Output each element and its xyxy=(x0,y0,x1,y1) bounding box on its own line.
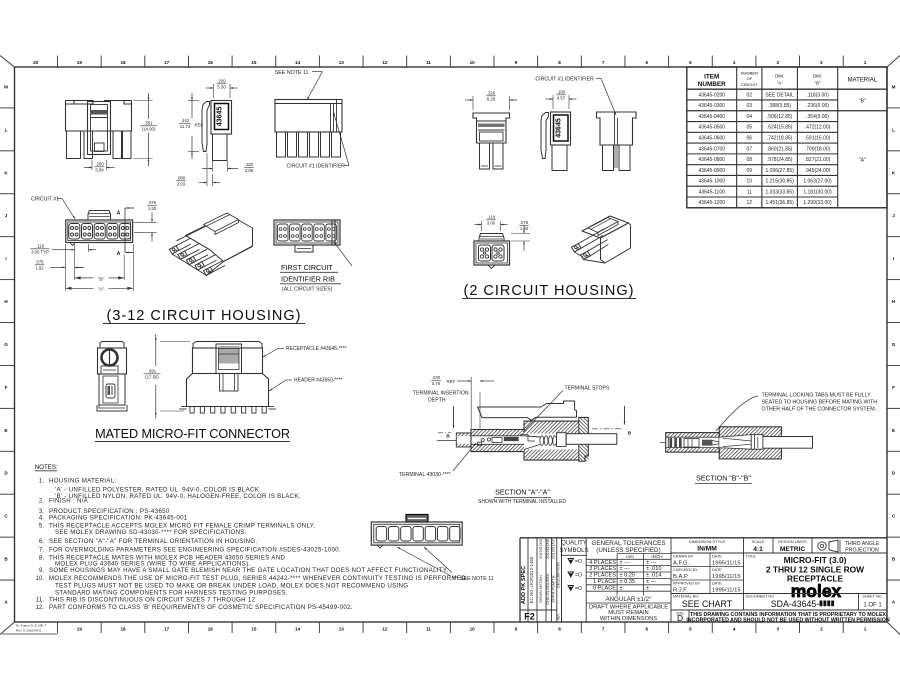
svg-text:4:1: 4:1 xyxy=(753,546,763,553)
svg-text:43645-1000: 43645-1000 xyxy=(698,179,725,185)
svg-text:15: 15 xyxy=(251,627,257,632)
svg-text:(ALL CIRCUIT SIZES): (ALL CIRCUIT SIZES) xyxy=(282,287,333,293)
svg-text:5.: 5. xyxy=(39,522,44,529)
svg-text:0.76: 0.76 xyxy=(432,381,441,386)
svg-text:9.: 9. xyxy=(39,567,44,574)
svg-text:DRAWN BY: DRAWN BY xyxy=(673,555,694,559)
svg-text:B: B xyxy=(446,434,450,440)
svg-text:12.: 12. xyxy=(35,604,44,611)
svg-text:1.93: 1.93 xyxy=(148,206,157,211)
svg-text:8.28: 8.28 xyxy=(487,96,496,101)
svg-text:2012/07/07: 2012/07/07 xyxy=(551,538,556,559)
svg-text:12: 12 xyxy=(382,627,388,632)
svg-text:.691: .691 xyxy=(148,369,157,374)
svg-text:MOLEX RECOMMENDS THE USE OF MI: MOLEX RECOMMENDS THE USE OF MICRO-FIT TE… xyxy=(49,575,468,582)
svg-text:HOUSING MATERIAL:: HOUSING MATERIAL: xyxy=(49,478,116,485)
svg-text:1.181(30.00): 1.181(30.00) xyxy=(803,189,832,195)
svg-text:1 PLACE: 1 PLACE xyxy=(593,579,616,585)
svg-text:SHEET NO.: SHEET NO. xyxy=(862,595,882,599)
svg-text:CIRCUIT #1 IDENTIFIER: CIRCUIT #1 IDENTIFIER xyxy=(287,164,346,170)
svg-text:=O: =O xyxy=(575,586,582,592)
svg-text:19: 19 xyxy=(77,60,83,65)
svg-text:2: 2 xyxy=(820,60,823,65)
svg-text:.506(12.85): .506(12.85) xyxy=(767,114,793,120)
svg-text:09: 09 xyxy=(747,168,753,174)
svg-text:FIRST CIRCUIT: FIRST CIRCUIT xyxy=(281,263,333,272)
svg-text:TITLE: TITLE xyxy=(746,555,757,559)
svg-text:INCH: INCH xyxy=(651,554,662,559)
svg-text:11: 11 xyxy=(426,60,431,65)
svg-text:SECTION "A"-"A": SECTION "A"-"A" xyxy=(495,490,550,497)
svg-text:10: 10 xyxy=(747,179,753,185)
svg-text:SEE SECTION "A"-"A" FOR TERMI: SEE SECTION "A"-"A" FOR TERMINAL ORIENTA… xyxy=(49,538,258,545)
svg-text:.075: .075 xyxy=(35,260,44,265)
svg-text:4.: 4. xyxy=(39,515,44,522)
svg-text:43645-0200: 43645-0200 xyxy=(698,92,725,98)
svg-text:4: 4 xyxy=(733,627,736,632)
svg-text:.472(12.00): .472(12.00) xyxy=(805,125,831,131)
svg-text:M: M xyxy=(4,84,8,89)
svg-text:DOCUMENT NO.: DOCUMENT NO. xyxy=(746,595,776,599)
svg-text:4: 4 xyxy=(733,60,736,65)
svg-text:.742(18.85): .742(18.85) xyxy=(767,136,793,142)
svg-text:"A": "A" xyxy=(777,81,783,86)
svg-text:2.: 2. xyxy=(39,498,44,505)
svg-text:± ---: ± --- xyxy=(646,560,656,566)
svg-text:5: 5 xyxy=(689,627,692,632)
svg-text:ITEM: ITEM xyxy=(704,74,719,81)
svg-text:1.451(36.85): 1.451(36.85) xyxy=(765,200,794,206)
svg-text:CIRCUIT: CIRCUIT xyxy=(741,82,758,87)
svg-text:± 0.25: ± 0.25 xyxy=(620,573,636,579)
svg-text:04: 04 xyxy=(747,114,753,120)
svg-text:MATERIAL NO.: MATERIAL NO. xyxy=(673,595,699,599)
svg-text:43645-0600: 43645-0600 xyxy=(698,136,725,142)
svg-text:HEADER #43650-****: HEADER #43650-**** xyxy=(294,378,342,384)
svg-text:08: 08 xyxy=(747,157,753,163)
svg-text:05: 05 xyxy=(747,125,753,131)
svg-text:F2: F2 xyxy=(524,612,535,622)
svg-text:9: 9 xyxy=(515,60,518,65)
svg-text:3: 3 xyxy=(776,627,779,632)
svg-text:17: 17 xyxy=(164,627,170,632)
svg-text:1.096(27.85): 1.096(27.85) xyxy=(765,168,794,174)
svg-text:APPR:PSMITH: APPR:PSMITH xyxy=(551,575,556,602)
svg-text:PROJECTION: PROJECTION xyxy=(845,548,879,554)
svg-text:11.74: 11.74 xyxy=(180,124,191,129)
svg-text:5.30: 5.30 xyxy=(217,84,226,89)
svg-text:(2 CIRCUIT HOUSING): (2 CIRCUIT HOUSING) xyxy=(464,283,635,299)
svg-text:.624(15.85): .624(15.85) xyxy=(767,125,793,131)
svg-text:D: D xyxy=(677,613,683,623)
svg-text:G: G xyxy=(892,342,896,347)
svg-text:TERMINAL INSERTION: TERMINAL INSERTION xyxy=(413,391,469,397)
svg-text:2 PLACES: 2 PLACES xyxy=(589,573,616,579)
svg-text:GENERAL TOLERANCES: GENERAL TOLERANCES xyxy=(591,540,665,547)
svg-text:"A": "A" xyxy=(859,158,866,164)
svg-text:PART CONFORMS TO CLASS 'B' REQ: PART CONFORMS TO CLASS 'B' REQUIREMENTS … xyxy=(49,604,353,611)
svg-text:.709(18.00): .709(18.00) xyxy=(805,146,831,152)
svg-text:(3-12 CIRCUIT HOUSING): (3-12 CIRCUIT HOUSING) xyxy=(107,308,302,324)
svg-text:5.09: 5.09 xyxy=(95,167,104,172)
svg-text:3.00 TYP: 3.00 TYP xyxy=(31,249,49,254)
svg-text:± .010: ± .010 xyxy=(646,566,662,572)
svg-text:.080: .080 xyxy=(177,176,186,181)
svg-text:10.: 10. xyxy=(35,575,44,582)
svg-text:.326: .326 xyxy=(487,91,496,96)
svg-text:8: 8 xyxy=(558,60,561,65)
svg-text:DIM.: DIM. xyxy=(813,74,822,79)
svg-text:'B' - UNFILLED NYLON, RATED UL: 'B' - UNFILLED NYLON, RATED UL. 94V-0, H… xyxy=(55,493,301,500)
svg-text:MATERIAL: MATERIAL xyxy=(848,78,878,84)
svg-text:INCORPORATED AND SHOULD NOT BE: INCORPORATED AND SHOULD NOT BE USED WITH… xyxy=(686,618,890,624)
svg-text:(14.00): (14.00) xyxy=(142,126,156,131)
svg-text:10: 10 xyxy=(470,60,476,65)
svg-text:G: G xyxy=(4,342,8,347)
svg-text:9: 9 xyxy=(515,627,518,632)
svg-text:FINISH : N/A: FINISH : N/A xyxy=(49,498,89,505)
svg-text:A.F.G.: A.F.G. xyxy=(673,561,689,567)
svg-text:± .014: ± .014 xyxy=(646,573,662,579)
svg-text:Dr. Frame D_P_ME_T: Dr. Frame D_P_ME_T xyxy=(16,624,47,628)
svg-text:02: 02 xyxy=(747,92,753,98)
svg-text:M: M xyxy=(892,84,896,89)
svg-text:EC NO. UCP2012-1450: EC NO. UCP2012-1450 xyxy=(529,556,534,603)
svg-text:RECEPTACLE #43645-****: RECEPTACLE #43645-**** xyxy=(286,346,347,352)
svg-text:.118: .118 xyxy=(487,215,496,220)
svg-text:.180: .180 xyxy=(557,90,566,95)
svg-text:IN/MM: IN/MM xyxy=(697,546,717,553)
svg-text:4.57: 4.57 xyxy=(557,95,566,100)
svg-text:L: L xyxy=(892,127,895,132)
svg-text:.388(9.85): .388(9.85) xyxy=(768,103,791,109)
svg-text:4 PLACES: 4 PLACES xyxy=(589,560,616,566)
svg-text:20: 20 xyxy=(33,60,39,65)
svg-text:1.92: 1.92 xyxy=(35,265,44,270)
svg-text:7.: 7. xyxy=(39,546,44,553)
svg-text:SCALE: SCALE xyxy=(751,539,764,544)
svg-text:1.063(27.00): 1.063(27.00) xyxy=(803,179,832,185)
svg-text:APPROVED BY: APPROVED BY xyxy=(673,582,701,586)
svg-text:DRWN:MSTBH: DRWN:MSTBH xyxy=(538,575,543,603)
svg-text:OF: OF xyxy=(747,76,753,81)
svg-text:10: 10 xyxy=(470,627,476,632)
svg-text:"A": "A" xyxy=(98,287,105,293)
svg-text:± ---: ± --- xyxy=(620,566,630,572)
svg-text:SEE CHART: SEE CHART xyxy=(682,599,733,609)
svg-text:5: 5 xyxy=(689,60,692,65)
svg-text:B: B xyxy=(628,431,632,437)
svg-text:A: A xyxy=(117,211,121,217)
svg-text:E: E xyxy=(892,428,895,433)
svg-text:.978(24.85): .978(24.85) xyxy=(767,157,793,163)
svg-text:SEE MOLEX DRAWING SD-43030-***: SEE MOLEX DRAWING SD-43030-**** FOR SPEC… xyxy=(55,529,247,536)
svg-text:0 PLACE: 0 PLACE xyxy=(593,585,616,591)
svg-text:1.: 1. xyxy=(39,478,44,485)
svg-text:TERMINAL STOPS: TERMINAL STOPS xyxy=(565,386,611,392)
svg-text:mm: mm xyxy=(626,554,634,559)
svg-text:THIS RIB IS DISCONTINUOUS ON C: THIS RIB IS DISCONTINUOUS ON CIRCUIT SIZ… xyxy=(49,597,256,604)
svg-text:DIMENSION STYLE: DIMENSION STYLE xyxy=(689,539,726,544)
svg-text:06: 06 xyxy=(747,136,753,142)
svg-text:TERMINAL LOCKING TABS MUST BE: TERMINAL LOCKING TABS MUST BE FULLY xyxy=(762,393,872,399)
svg-text:07: 07 xyxy=(747,146,753,152)
svg-text:8: 8 xyxy=(558,627,561,632)
svg-text:A: A xyxy=(117,251,121,257)
svg-text:.354(9.00): .354(9.00) xyxy=(806,114,829,120)
svg-text:SDA-43645-: SDA-43645- xyxy=(771,599,819,609)
svg-text:.030: .030 xyxy=(432,375,441,380)
svg-text:STANDARD MATING COMPONENTS FOR: STANDARD MATING COMPONENTS FOR HARNESS T… xyxy=(55,589,288,596)
svg-text:molex: molex xyxy=(791,581,842,601)
svg-text:.118(3.00): .118(3.00) xyxy=(806,92,829,98)
svg-text:Rev. G 2010/04/11: Rev. G 2010/04/11 xyxy=(16,629,42,633)
svg-text:CIRCUIT #1: CIRCUIT #1 xyxy=(31,197,59,203)
svg-text:1: 1 xyxy=(864,60,867,65)
svg-text:THIRD ANGLE: THIRD ANGLE xyxy=(845,541,880,547)
svg-text:1995/11/15: 1995/11/15 xyxy=(712,561,741,567)
svg-text:REV: REV xyxy=(557,613,561,620)
svg-text:±: ± xyxy=(646,585,649,591)
svg-text:F: F xyxy=(892,385,895,390)
svg-text:13: 13 xyxy=(339,60,345,65)
svg-text:DATE: DATE xyxy=(712,555,722,559)
svg-text:"B": "B" xyxy=(815,81,821,86)
svg-text:.236(6.00): .236(6.00) xyxy=(806,103,829,109)
svg-text:2: 2 xyxy=(820,627,823,632)
svg-text:DIM.: DIM. xyxy=(775,74,784,79)
svg-text:1995/11/15: 1995/11/15 xyxy=(712,588,741,594)
svg-text:NUMBER: NUMBER xyxy=(698,81,726,88)
svg-text:.591(15.00): .591(15.00) xyxy=(805,136,831,142)
svg-text:PACKAGING SPECIFICATION: PK-43: PACKAGING SPECIFICATION: PK-43645-001 xyxy=(49,515,188,522)
svg-text:03: 03 xyxy=(747,103,753,109)
svg-text:11.: 11. xyxy=(36,597,44,604)
svg-text:3.86: 3.86 xyxy=(245,168,254,173)
svg-text:43645: 43645 xyxy=(556,118,563,138)
svg-text:.076: .076 xyxy=(520,220,529,225)
svg-text:SHOWN WITH TERMINAL INSTALLED: SHOWN WITH TERMINAL INSTALLED xyxy=(478,499,566,505)
svg-text:FOR OVERMOLDING PARAMETERS SEE: FOR OVERMOLDING PARAMETERS SEE ENGINEERI… xyxy=(49,546,341,553)
svg-text:ADD PK SPEC: ADD PK SPEC xyxy=(521,566,527,604)
svg-text:I: I xyxy=(893,256,894,261)
svg-text:DESIGN UNITS: DESIGN UNITS xyxy=(778,539,807,544)
svg-text:NUMBER: NUMBER xyxy=(741,71,758,76)
svg-text:2012/07/03: 2012/07/03 xyxy=(538,538,543,559)
svg-text:SYMBOLS: SYMBOLS xyxy=(559,548,588,554)
svg-text:3: 3 xyxy=(776,60,779,65)
svg-text:DEPTH: DEPTH xyxy=(428,398,446,404)
svg-text:18: 18 xyxy=(120,60,126,65)
svg-text:SEATED TO HOUSING BEFORE MATIN: SEATED TO HOUSING BEFORE MATING WITH xyxy=(762,400,878,406)
svg-text:2.03: 2.03 xyxy=(177,181,186,186)
svg-text:6.: 6. xyxy=(39,538,44,545)
svg-text:OTHER HALF OF THE CONNECTOR SY: OTHER HALF OF THE CONNECTOR SYSTEM. xyxy=(762,407,877,413)
svg-text:=O: =O xyxy=(575,559,582,565)
svg-text:15: 15 xyxy=(251,60,257,65)
svg-text:43645: 43645 xyxy=(217,107,224,127)
svg-text:=O: =O xyxy=(575,573,582,579)
svg-text:43645-0900: 43645-0900 xyxy=(698,168,725,174)
svg-text:(UNLESS SPECIFIED): (UNLESS SPECIFIED) xyxy=(596,547,660,554)
svg-text:SEE DETAIL: SEE DETAIL xyxy=(765,92,794,98)
svg-text:43645-0400: 43645-0400 xyxy=(698,114,725,120)
svg-text:6: 6 xyxy=(646,627,649,632)
svg-text:13: 13 xyxy=(339,627,345,632)
svg-text:WITHIN DIMENSONS: WITHIN DIMENSONS xyxy=(600,616,657,622)
svg-text:12: 12 xyxy=(382,60,388,65)
svg-text:TERMINAL 43030-****: TERMINAL 43030-**** xyxy=(399,472,451,478)
svg-text:.118: .118 xyxy=(36,244,45,249)
svg-text:8.: 8. xyxy=(39,555,44,562)
svg-text:METRIC: METRIC xyxy=(780,546,806,553)
svg-text:QUALITY: QUALITY xyxy=(561,541,587,547)
svg-text:"B": "B" xyxy=(98,276,105,282)
svg-text:43645-0300: 43645-0300 xyxy=(698,103,725,109)
svg-text:(17.56): (17.56) xyxy=(145,374,159,379)
svg-text:43645-1200: 43645-1200 xyxy=(698,200,725,206)
svg-text:DATE: DATE xyxy=(712,568,722,572)
svg-text:± ---: ± --- xyxy=(646,579,656,585)
svg-text:MATED MICRO-FIT CONNECTOR: MATED MICRO-FIT CONNECTOR xyxy=(95,427,290,441)
svg-text:.551: .551 xyxy=(144,121,153,126)
svg-text:CIRCUIT #1 IDENTIFIER: CIRCUIT #1 IDENTIFIER xyxy=(535,77,594,83)
svg-text:1 OF 1: 1 OF 1 xyxy=(863,603,882,609)
svg-text:14: 14 xyxy=(295,627,301,632)
svg-text:"B": "B" xyxy=(859,99,866,105)
svg-text:.209: .209 xyxy=(217,79,226,84)
svg-text:43645-0500: 43645-0500 xyxy=(698,125,725,131)
svg-text:1.215(30.85): 1.215(30.85) xyxy=(765,179,794,185)
svg-text:B.A.P.: B.A.P. xyxy=(673,574,689,580)
svg-text:L: L xyxy=(5,127,8,132)
svg-text:MICRO-FIT (3.0): MICRO-FIT (3.0) xyxy=(784,555,847,565)
svg-text:.945(24.00): .945(24.00) xyxy=(805,168,831,174)
svg-text:11: 11 xyxy=(747,189,752,195)
svg-text:43645-1100: 43645-1100 xyxy=(699,189,726,195)
svg-text:F: F xyxy=(5,385,8,390)
svg-text:R.J.F.: R.J.F. xyxy=(673,588,688,594)
svg-text:DESCRIPTION: DESCRIPTION xyxy=(557,562,561,588)
svg-text:ANGULAR ±1/2°: ANGULAR ±1/2° xyxy=(605,596,652,603)
svg-text:12: 12 xyxy=(747,200,753,206)
svg-text:1995/11/15: 1995/11/15 xyxy=(712,574,741,580)
svg-text:.200: .200 xyxy=(95,162,104,167)
svg-text:1.299(33.00): 1.299(33.00) xyxy=(803,200,832,206)
svg-text:6: 6 xyxy=(646,60,649,65)
svg-text:43645-0800: 43645-0800 xyxy=(698,157,725,163)
svg-text:SOME HOUSINGS MAY HAVE A SMALL: SOME HOUSINGS MAY HAVE A SMALL GATE BLEM… xyxy=(49,567,448,574)
svg-text:17: 17 xyxy=(164,60,170,65)
svg-text:.827(21.00): .827(21.00) xyxy=(805,157,831,163)
svg-text:I: I xyxy=(5,256,6,261)
svg-text:CHK:GLSOUSEK: CHK:GLSOUSEK xyxy=(545,573,550,605)
svg-text:±: ± xyxy=(620,585,623,591)
svg-text:SEE NOTE 11: SEE NOTE 11 xyxy=(275,70,309,76)
svg-text:.442: .442 xyxy=(181,118,190,123)
svg-text:J: J xyxy=(5,213,8,218)
svg-text:REF: REF xyxy=(195,123,204,128)
svg-text:DATE: DATE xyxy=(712,582,722,586)
svg-text:11: 11 xyxy=(426,627,431,632)
svg-text:± 0.35: ± 0.35 xyxy=(620,579,636,585)
svg-text:.152: .152 xyxy=(245,162,254,167)
svg-text:J: J xyxy=(892,213,895,218)
svg-text:3.00: 3.00 xyxy=(487,220,496,225)
svg-text:16: 16 xyxy=(208,627,214,632)
svg-text:16: 16 xyxy=(208,60,214,65)
svg-text:19: 19 xyxy=(77,627,83,632)
svg-text:E: E xyxy=(4,428,7,433)
svg-text:43645-0700: 43645-0700 xyxy=(698,146,725,152)
svg-text:1.333(33.85): 1.333(33.85) xyxy=(765,189,794,195)
svg-text:7: 7 xyxy=(602,60,605,65)
svg-text:14: 14 xyxy=(295,60,301,65)
svg-text:SECTION "B"-"B": SECTION "B"-"B" xyxy=(696,476,751,483)
svg-text:.076: .076 xyxy=(148,200,157,205)
svg-text:CHECKED BY: CHECKED BY xyxy=(673,568,698,572)
svg-text:± ---: ± --- xyxy=(620,560,630,566)
svg-text:NOTES:: NOTES: xyxy=(35,464,58,471)
svg-text:7: 7 xyxy=(602,627,605,632)
svg-text:3 PLACES: 3 PLACES xyxy=(589,566,616,572)
svg-text:18: 18 xyxy=(120,627,126,632)
svg-text:1: 1 xyxy=(864,627,867,632)
svg-text:2012/07/05: 2012/07/05 xyxy=(545,538,550,559)
svg-text:IDENTIFIER RIB: IDENTIFIER RIB xyxy=(281,275,335,284)
svg-text:REF: REF xyxy=(447,379,456,384)
svg-text:.860(21.85): .860(21.85) xyxy=(767,146,793,152)
